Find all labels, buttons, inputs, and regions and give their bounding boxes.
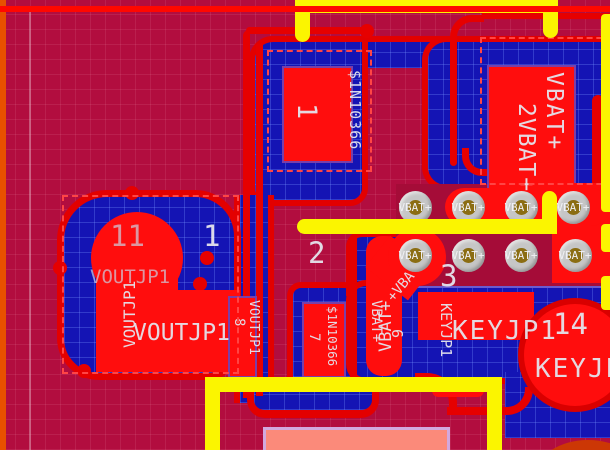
trace-yellow-right-edge-3[interactable] bbox=[601, 276, 610, 310]
via-net-label: VBAT+ bbox=[385, 249, 445, 262]
label-pad8-name: VOUTJP1 bbox=[247, 300, 260, 355]
trace-yellow-bridge-left[interactable] bbox=[205, 377, 220, 450]
trace-yellow-mid-vertical[interactable] bbox=[542, 191, 557, 234]
label-pad7-name: $1N10366 bbox=[326, 306, 339, 366]
via-vbat[interactable]: VBAT+ bbox=[505, 239, 538, 272]
trace-yellow-bridge-right[interactable] bbox=[487, 377, 502, 450]
label-keyjp1-lower: KEYJP1 bbox=[535, 356, 610, 382]
via-vbat[interactable]: VBAT+ bbox=[557, 191, 590, 224]
label-vbat9-net-down: VBAT+ bbox=[369, 300, 383, 342]
via-vbat[interactable]: VBAT+ bbox=[559, 239, 592, 272]
region-orange-ellipse[interactable] bbox=[536, 440, 610, 450]
trace-junction-dot[interactable] bbox=[360, 24, 374, 38]
trace-yellow-mid-horizontal[interactable] bbox=[297, 219, 557, 234]
label-keyjp1-vertical: KEYJP1 bbox=[438, 303, 453, 357]
label-number-14: 14 bbox=[553, 310, 588, 339]
trace-red-top-line[interactable] bbox=[0, 6, 610, 12]
via-net-label: VBAT+ bbox=[545, 249, 605, 262]
label-number-2: 2 bbox=[308, 239, 325, 268]
trace-yellow-right-edge-2[interactable] bbox=[601, 224, 610, 252]
trace-right-vertical[interactable] bbox=[450, 40, 457, 166]
trace-yellow-bridge-horizontal[interactable] bbox=[205, 377, 502, 392]
trace-yellow-right-edge-1[interactable] bbox=[601, 14, 610, 212]
grid-guide-line bbox=[29, 10, 31, 450]
zone-bottom-band[interactable] bbox=[247, 388, 379, 418]
label-pad7-number: 7 bbox=[307, 333, 321, 341]
label-number-3: 3 bbox=[440, 262, 457, 291]
label-keyjp1-main: KEYJP1 bbox=[452, 318, 558, 344]
label-vbat9-number: 9 bbox=[391, 329, 406, 338]
selection-box-pad2[interactable] bbox=[480, 37, 610, 185]
region-pink-pad[interactable] bbox=[263, 427, 450, 450]
via-net-label: VBAT+ bbox=[385, 201, 445, 214]
pcb-canvas: VBAT+VBAT+VBAT+VBAT+VBAT+VBAT+VBAT+VBAT+… bbox=[0, 0, 610, 450]
via-vbat[interactable]: VBAT+ bbox=[399, 239, 432, 272]
selection-box-vout[interactable] bbox=[62, 195, 239, 374]
via-net-label: VBAT+ bbox=[438, 201, 498, 214]
board-edge-strip bbox=[0, 0, 6, 450]
trace-mid-vertical[interactable] bbox=[350, 237, 357, 377]
via-net-label: VBAT+ bbox=[491, 249, 551, 262]
selection-box-pad1[interactable] bbox=[267, 50, 372, 172]
